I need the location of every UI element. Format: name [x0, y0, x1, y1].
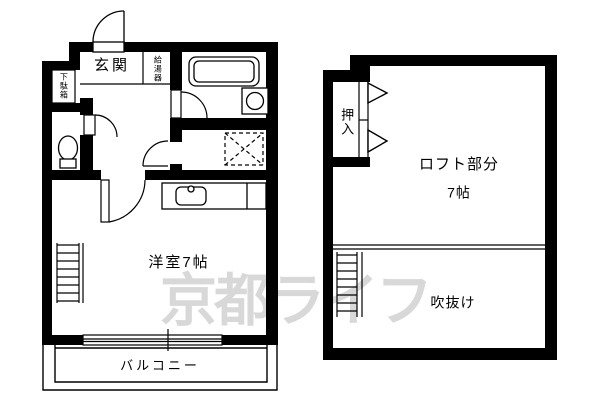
- main-room-door: [101, 180, 145, 222]
- label-shoe-cabinet: 下駄箱: [59, 73, 68, 100]
- loft-void-divider: [333, 245, 545, 249]
- label-loft-size: 7帖: [447, 185, 471, 200]
- loft-ladder-2f-icon: [337, 252, 362, 317]
- loft-ladder-1f-icon: [57, 243, 83, 303]
- label-western-room: 洋室7帖: [148, 255, 209, 272]
- floor-plan-image: 玄関 給湯器 下駄箱 洋室7帖 バルコニー 押入 ロフト部分 7帖 吹抜け 京都…: [0, 0, 600, 400]
- washing-machine-pan-icon: [225, 133, 263, 165]
- toilet-icon: [59, 136, 78, 168]
- entrance-door: [93, 11, 124, 52]
- toilet-door: [84, 115, 117, 137]
- label-balcony: バルコニー: [120, 359, 200, 373]
- bathroom-door: [171, 90, 207, 118]
- label-void: 吹抜け: [431, 295, 476, 310]
- bathtub-icon: [189, 57, 259, 86]
- washbasin-icon: [242, 88, 268, 114]
- kitchen-counter-icon: [162, 183, 266, 209]
- label-closet: 押入: [339, 108, 353, 136]
- label-loft: ロフト部分: [419, 157, 499, 174]
- loft-walls: [323, 55, 557, 360]
- floor-plan-drawing: [0, 0, 600, 400]
- closet-door-arrow-icons: [368, 83, 387, 152]
- label-water-heater: 給湯器: [153, 56, 162, 83]
- washroom-door: [143, 141, 168, 166]
- closet-front-lines: [359, 82, 368, 157]
- label-genkan: 玄関: [94, 58, 130, 75]
